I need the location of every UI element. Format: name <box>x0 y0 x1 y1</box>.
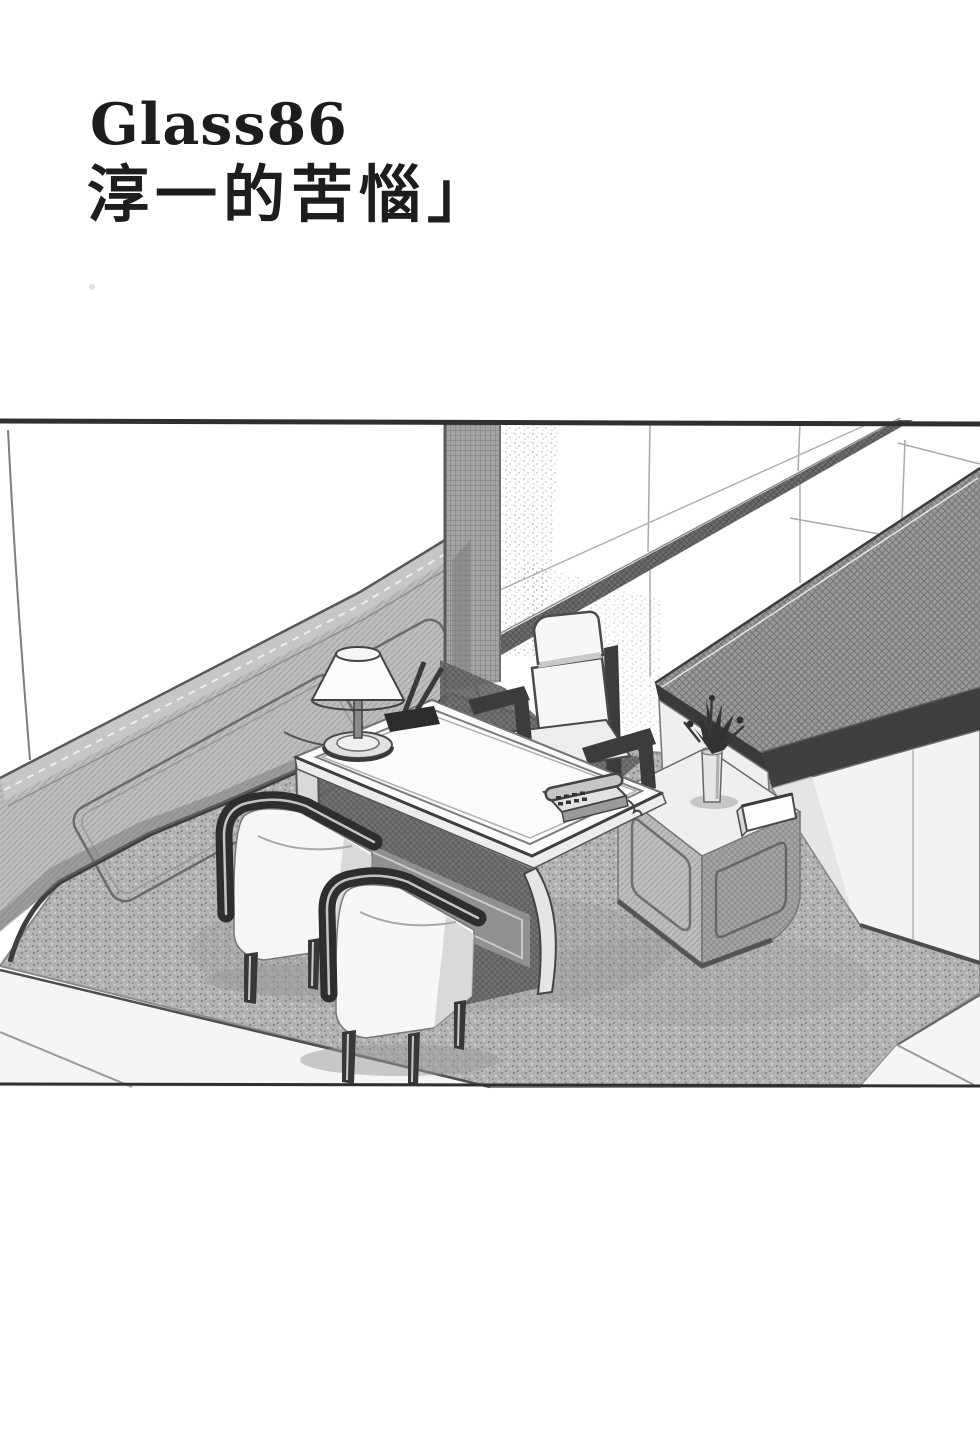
scan-artifact-speck <box>89 284 95 290</box>
panel-top-border <box>0 421 980 424</box>
guest-chair-right <box>300 876 500 1086</box>
manga-panel-illustration <box>0 0 980 1448</box>
panel-bottom-border <box>0 1084 980 1086</box>
left-wall-edge <box>8 430 30 760</box>
corner-column <box>445 423 500 690</box>
manga-page: Glass86 淳一的苦惱」 <box>0 0 980 1448</box>
